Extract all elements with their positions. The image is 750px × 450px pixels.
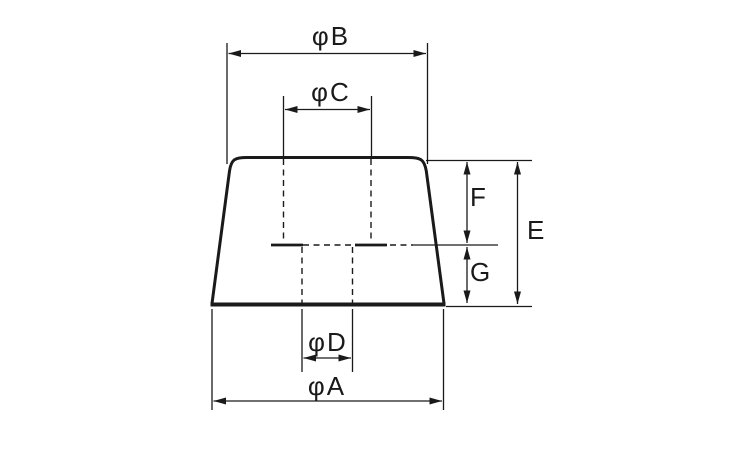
dim-label-g: G [470,257,492,287]
part-outline [212,158,444,304]
dimension-drawing-svg: φB φC F G E φD φA [0,0,750,450]
dim-label-e: E [527,215,546,245]
dim-label-f: F [470,182,488,212]
dim-label-dia-d: φD [308,327,348,357]
drawing-canvas: φB φC F G E φD φA [0,0,750,450]
dim-label-dia-c: φC [311,77,351,107]
dim-label-dia-a: φA [308,371,346,401]
dim-label-dia-b: φB [312,21,350,51]
